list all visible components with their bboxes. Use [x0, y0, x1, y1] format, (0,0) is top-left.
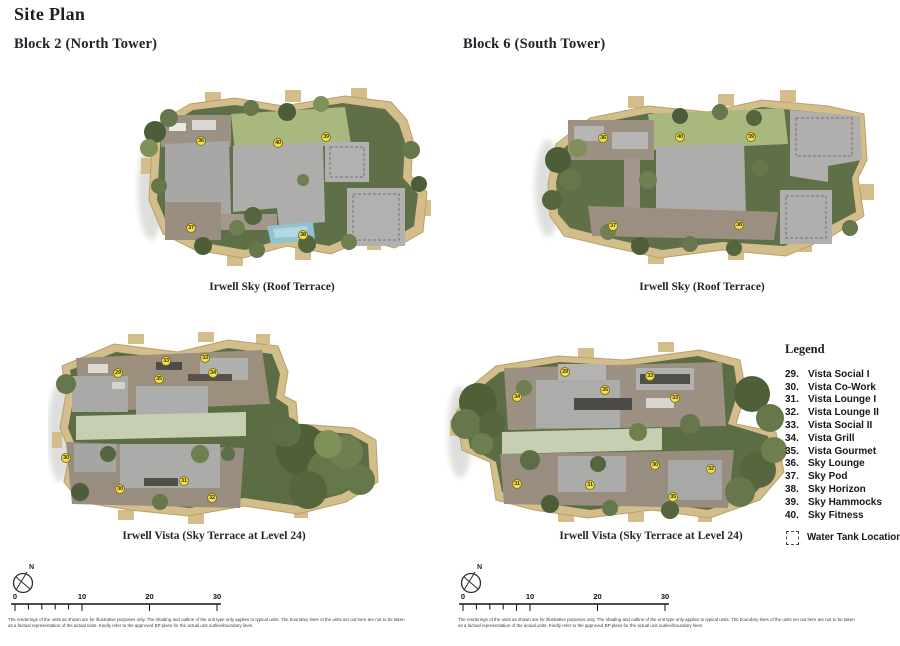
amenity-marker-30: 30: [650, 460, 660, 470]
caption-block6-roof: Irwell Sky (Roof Terrace): [552, 281, 852, 293]
amenity-marker-40: 40: [675, 132, 685, 142]
amenity-marker-34: 34: [208, 368, 218, 378]
plan-block2-roof-terrace: 3640393738: [135, 88, 435, 283]
water-tank-area-bottom: [347, 188, 405, 246]
amenity-marker-33: 33: [645, 371, 655, 381]
disclaimer-text: The renderings of the units as shown are…: [8, 617, 432, 629]
amenity-marker-37: 37: [186, 223, 196, 233]
site-plan-page: Site Plan Block 2 (North Tower) Block 6 …: [0, 0, 900, 646]
caption-block2-vista: Irwell Vista (Sky Terrace at Level 24): [64, 530, 364, 542]
amenity-marker-35: 35: [154, 374, 164, 384]
legend-item: 39.Sky Hammocks: [785, 496, 900, 509]
legend-item: 33.Vista Social II: [785, 419, 900, 432]
svg-text:20: 20: [145, 592, 153, 601]
svg-text:0: 0: [13, 592, 17, 601]
page-title: Site Plan: [14, 4, 85, 25]
legend-item: 34.Vista Grill: [785, 432, 900, 445]
amenity-marker-32: 32: [706, 464, 716, 474]
scale-bar: 010 2030: [6, 590, 226, 616]
roof-slab-central: [656, 143, 746, 218]
amenity-marker-31: 31: [179, 476, 189, 486]
sky-garden-band: [76, 412, 246, 440]
amenity-marker-38: 38: [734, 220, 744, 230]
block2-vista-rendering: [48, 332, 388, 524]
svg-text:N: N: [477, 564, 482, 571]
amenity-marker-36: 36: [196, 136, 206, 146]
svg-text:0: 0: [461, 592, 465, 601]
legend-item: 38.Sky Horizon: [785, 483, 900, 496]
legend-item: 31.Vista Lounge I: [785, 394, 900, 407]
water-tank-area-top: [325, 142, 369, 182]
amenity-marker-30: 30: [115, 484, 125, 494]
heading-block6-south-tower: Block 6 (South Tower): [463, 36, 605, 53]
legend: Legend 29.Vista Social I30.Vista Co-Work…: [785, 342, 900, 545]
amenity-marker-33: 33: [200, 353, 210, 363]
legend-title: Legend: [785, 342, 900, 357]
plan-block6-roof-terrace: 3640393738: [528, 88, 878, 283]
legend-item: 35.Vista Gourmet: [785, 445, 900, 458]
legend-item: 40.Sky Fitness: [785, 509, 900, 522]
heading-block2-north-tower: Block 2 (North Tower): [14, 36, 157, 53]
deck-bottom-left: [165, 202, 221, 240]
amenity-marker-34: 34: [512, 392, 522, 402]
amenity-marker-35: 35: [668, 492, 678, 502]
plan-block6-sky-terrace: 34293533333032313135: [438, 332, 790, 528]
water-tank-dashed-box-icon: [786, 531, 799, 545]
amenity-marker-33: 33: [161, 356, 171, 366]
water-tank-area-bottom: [780, 190, 832, 244]
block6-roof-rendering: [528, 88, 878, 283]
legend-item: 36.Sky Lounge: [785, 458, 900, 471]
amenity-marker-29: 29: [113, 368, 123, 378]
amenity-marker-35: 35: [600, 385, 610, 395]
svg-text:20: 20: [593, 592, 601, 601]
caption-block2-roof: Irwell Sky (Roof Terrace): [122, 281, 422, 293]
amenity-marker-38: 38: [298, 230, 308, 240]
scale-bar: 010 2030: [454, 590, 674, 616]
svg-text:N: N: [29, 564, 34, 571]
plan-block2-sky-terrace: 293333343530303132: [48, 332, 388, 524]
svg-text:10: 10: [526, 592, 534, 601]
disclaimer-text: The renderings of the units as shown are…: [458, 617, 882, 629]
legend-item: 29.Vista Social I: [785, 368, 900, 381]
svg-text:30: 30: [661, 592, 669, 601]
svg-text:30: 30: [213, 592, 221, 601]
legend-water-tank: Water Tank Location: [785, 531, 900, 545]
water-tank-label: Water Tank Location: [807, 532, 900, 543]
caption-block6-vista: Irwell Vista (Sky Terrace at Level 24): [501, 530, 801, 542]
legend-list: 29.Vista Social I30.Vista Co-Work31.Vist…: [785, 368, 900, 522]
block2-roof-rendering: [135, 88, 435, 283]
amenity-marker-37: 37: [608, 221, 618, 231]
amenity-marker-31: 31: [512, 479, 522, 489]
legend-item: 37.Sky Pod: [785, 470, 900, 483]
block6-vista-rendering: [438, 332, 790, 528]
amenity-marker-29: 29: [560, 367, 570, 377]
legend-item: 30.Vista Co-Work: [785, 381, 900, 394]
amenity-marker-39: 39: [321, 132, 331, 142]
amenity-marker-32: 32: [207, 493, 217, 503]
amenity-marker-33: 33: [670, 393, 680, 403]
legend-item: 32.Vista Lounge II: [785, 406, 900, 419]
amenity-marker-36: 36: [598, 133, 608, 143]
deck-connector: [624, 158, 640, 208]
amenity-marker-39: 39: [746, 132, 756, 142]
roof-slab: [72, 376, 128, 412]
svg-text:10: 10: [78, 592, 86, 601]
amenity-marker-31: 31: [585, 480, 595, 490]
amenity-marker-30: 30: [61, 453, 71, 463]
amenity-marker-40: 40: [273, 138, 283, 148]
